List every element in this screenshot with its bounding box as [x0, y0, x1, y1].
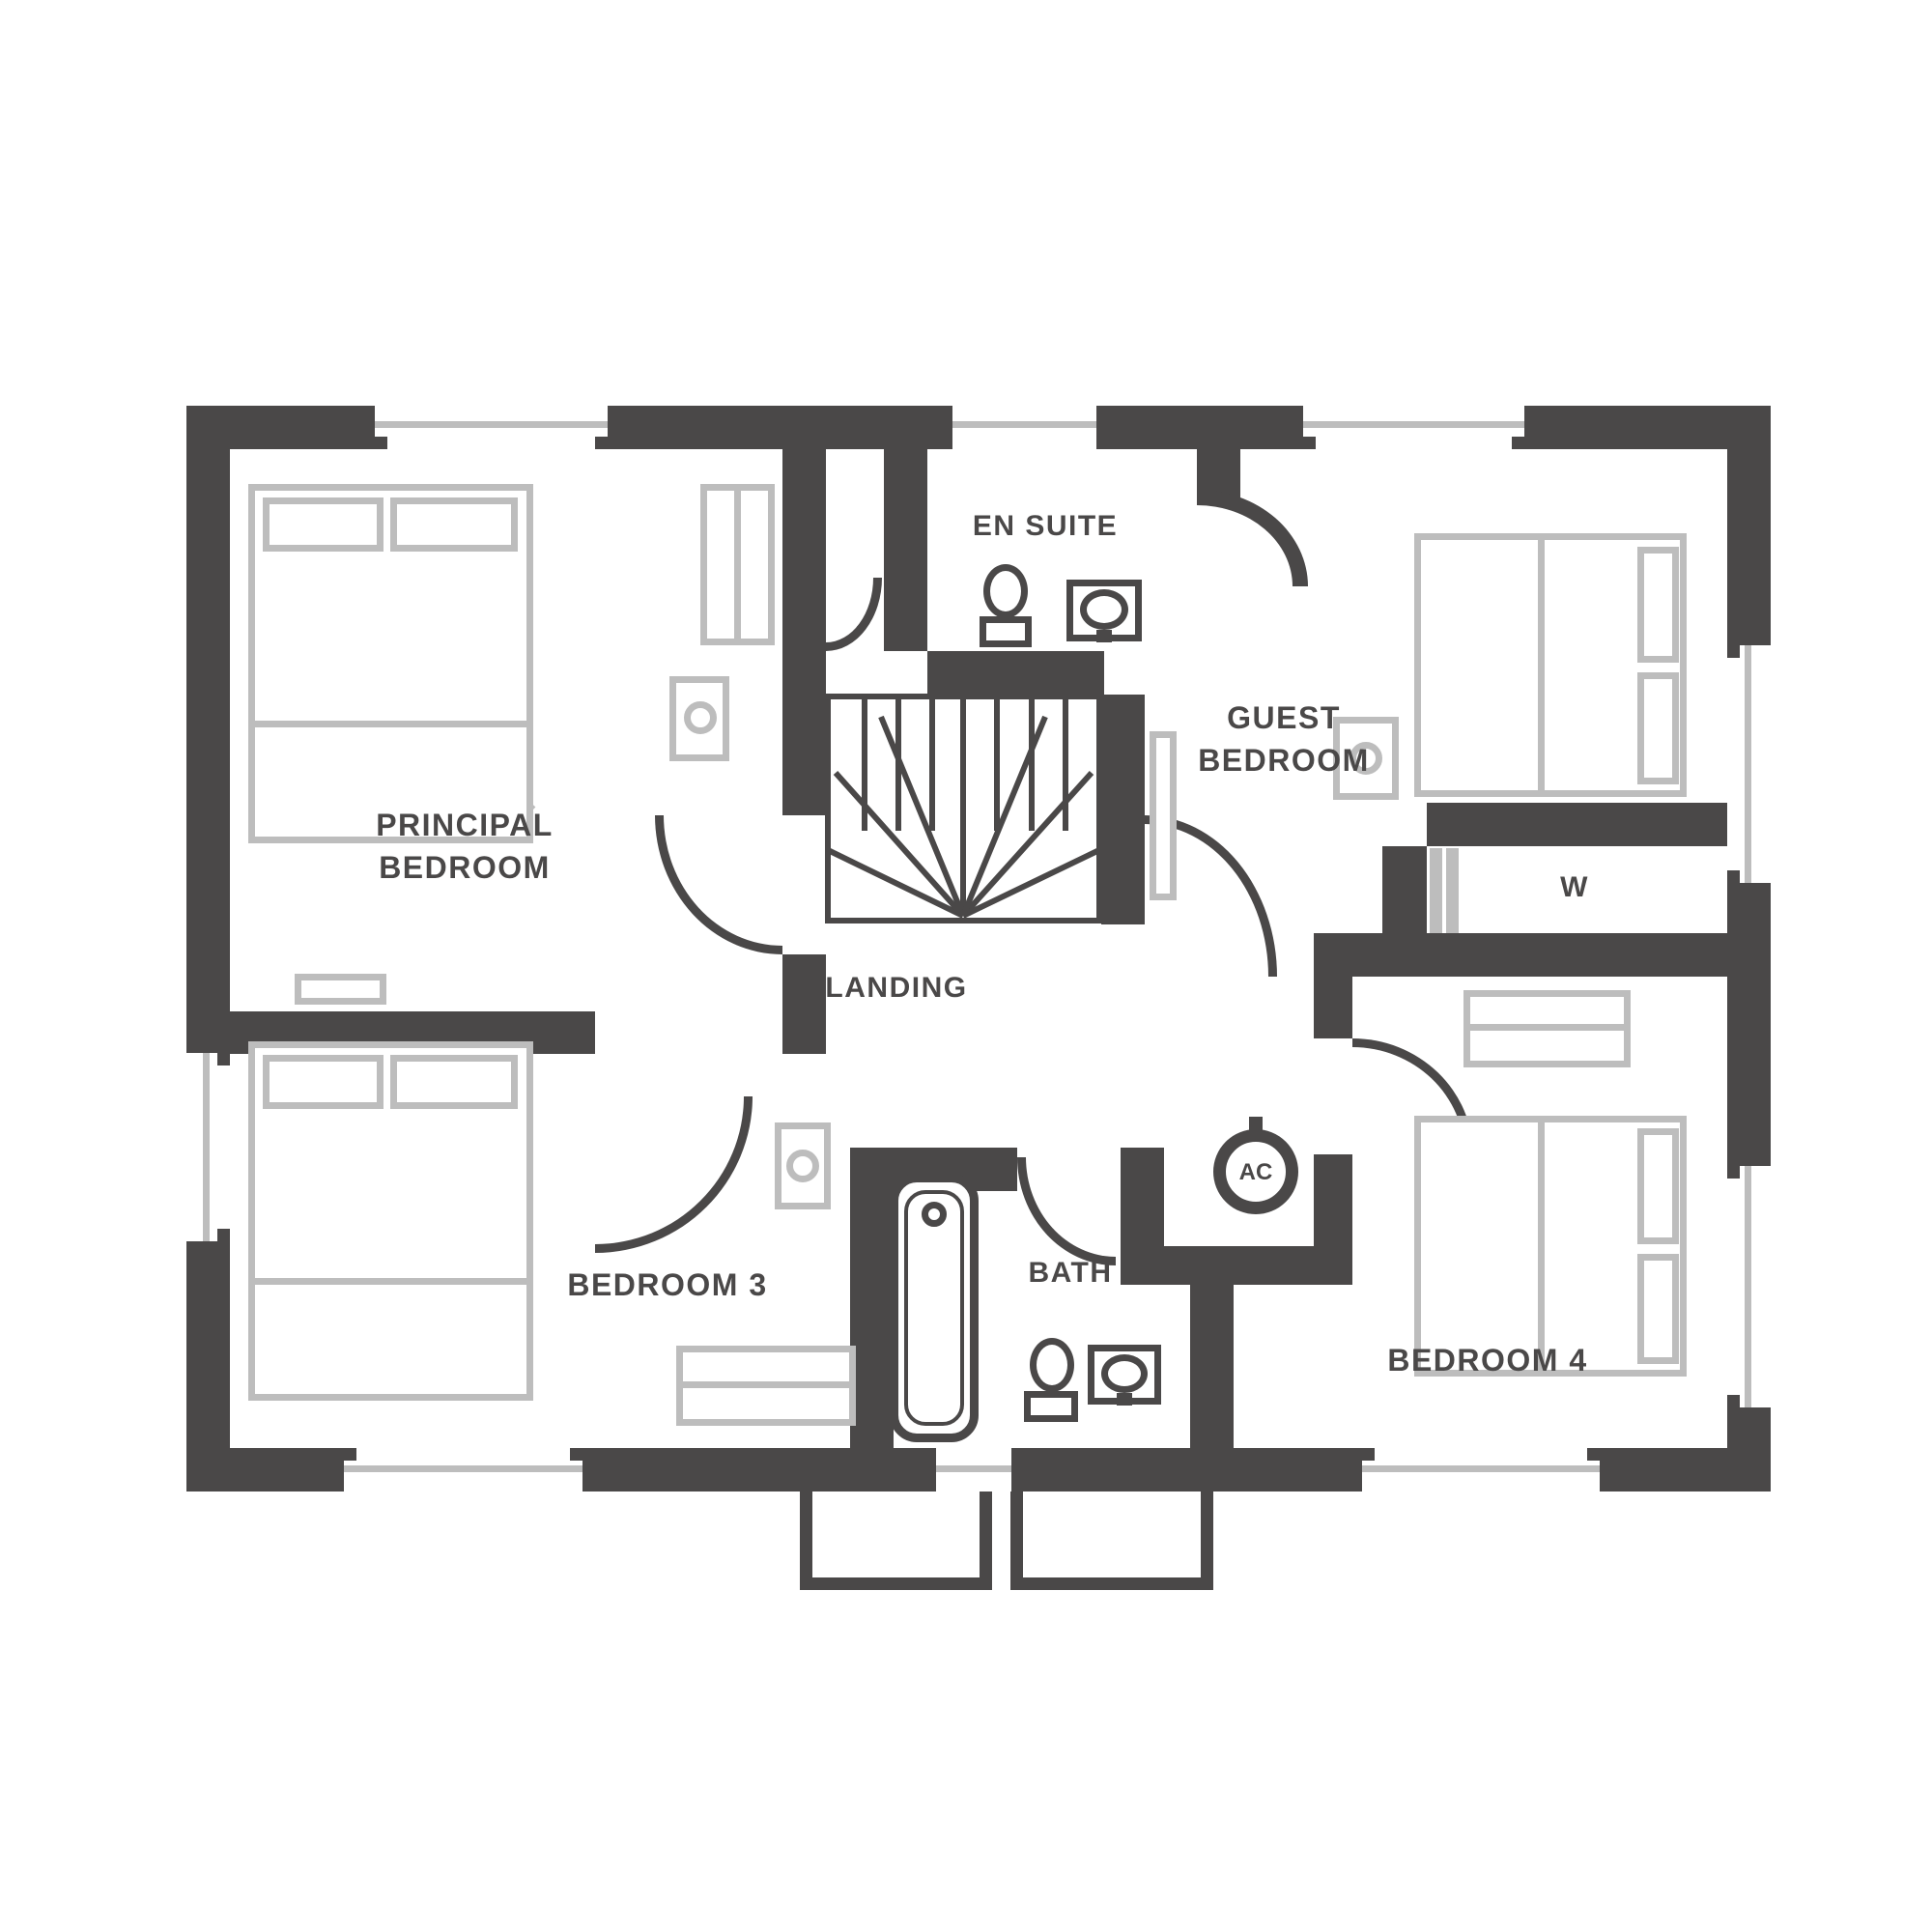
wall-segment: [1727, 1407, 1771, 1448]
curved-wall-ensuite: [1197, 490, 1308, 586]
window: [952, 421, 1096, 428]
pillow: [1637, 1128, 1679, 1244]
room-label-line: PRINCIPAL: [376, 804, 554, 846]
blanket-line: [248, 721, 533, 727]
bath-taps: [922, 1202, 947, 1227]
room-label-en-suite: EN SUITE: [973, 505, 1118, 548]
wall-segment: [927, 651, 1104, 695]
window-jamb: [595, 437, 608, 449]
door-swing-bath: [1017, 1157, 1116, 1265]
room-label-bath: BATH: [1028, 1252, 1112, 1294]
basin-tap: [1117, 1393, 1132, 1406]
window: [1303, 421, 1524, 428]
wall-segment: [1096, 406, 1303, 449]
room-label-wardrobe: W: [1560, 867, 1589, 909]
wall-segment: [1314, 977, 1352, 1038]
pillow: [263, 1055, 384, 1109]
wall-segment: [1190, 1285, 1234, 1448]
window: [203, 1053, 210, 1241]
window: [1745, 1166, 1751, 1407]
wall-segment: [582, 1448, 936, 1492]
basin-bowl: [1101, 1354, 1148, 1393]
wall-segment: [1524, 406, 1771, 449]
blanket-line: [1538, 1116, 1545, 1377]
room-label-principal-bedroom: PRINCIPAL BEDROOM: [376, 804, 554, 889]
wall-segment: [884, 449, 927, 651]
room-label-airing-cupboard: AC: [1239, 1151, 1273, 1194]
window: [375, 421, 608, 428]
cupboard-door: [1446, 848, 1459, 933]
wall-segment: [608, 406, 952, 449]
wall-segment: [1382, 846, 1427, 933]
window-jamb: [1727, 870, 1740, 883]
window: [344, 1465, 582, 1472]
toilet-bowl: [983, 564, 1028, 618]
window-jamb: [570, 1448, 582, 1461]
floor-plan: PRINCIPAL BEDROOM GUEST BEDROOM EN SUITE…: [0, 0, 1932, 1932]
blanket-line: [1538, 533, 1545, 797]
room-label-line: BEDROOM: [1198, 739, 1370, 781]
window-jamb: [1727, 645, 1740, 658]
door-swing-ensuite-lobby: [826, 578, 882, 651]
toilet-bowl: [1030, 1338, 1074, 1392]
window: [936, 1465, 1011, 1472]
room-label-line: GUEST: [1198, 696, 1370, 739]
window-jamb: [217, 1053, 230, 1065]
window: [1362, 1465, 1600, 1472]
door-swing-principal: [655, 815, 782, 954]
wardrobe-door-line: [1470, 1024, 1624, 1031]
wall-segment: [782, 954, 826, 1054]
pillow: [1637, 547, 1679, 663]
airing-cupboard-tick: [1249, 1117, 1263, 1134]
basin-bowl: [1080, 589, 1128, 630]
window-jamb: [217, 1229, 230, 1241]
wall-segment: [186, 1448, 344, 1492]
blanket-line: [248, 1278, 533, 1285]
wall-segment: [1154, 1246, 1352, 1285]
porch: [1010, 1492, 1213, 1590]
window-jamb: [1303, 437, 1316, 449]
window: [1745, 645, 1751, 883]
basin-tap: [1096, 630, 1112, 642]
wall-segment: [1427, 803, 1727, 846]
pillow: [390, 1055, 518, 1109]
wall-segment: [1314, 933, 1727, 977]
door-swing-bedroom3: [595, 1096, 753, 1253]
pillow: [390, 497, 518, 552]
pillow: [1637, 1254, 1679, 1364]
wardrobe-door-line: [683, 1381, 849, 1388]
toilet-cistern: [980, 616, 1032, 647]
wardrobe-door-line: [734, 491, 741, 639]
wall-segment: [1727, 883, 1771, 1166]
window-jamb: [1587, 1448, 1600, 1461]
room-label-landing: LANDING: [825, 967, 967, 1009]
window-jamb: [1727, 1166, 1740, 1179]
wall-segment: [186, 1241, 230, 1448]
window-jamb: [1362, 1448, 1375, 1461]
room-label-bedroom-4: BEDROOM 4: [1387, 1339, 1587, 1381]
door-leaf: [1150, 731, 1177, 900]
window-jamb: [1727, 1395, 1740, 1407]
wall-segment: [1101, 695, 1145, 924]
wall-segment: [1011, 1448, 1362, 1492]
window-jamb: [1512, 437, 1524, 449]
lamp: [786, 1150, 819, 1182]
porch: [800, 1492, 992, 1590]
radiator: [295, 974, 386, 1005]
toilet-cistern: [1024, 1391, 1078, 1422]
lamp: [684, 701, 717, 734]
room-label-bedroom-3: BEDROOM 3: [567, 1264, 767, 1306]
room-label-line: BEDROOM: [376, 846, 554, 889]
wall-segment: [782, 449, 826, 815]
pillow: [263, 497, 384, 552]
wall-segment: [850, 1148, 894, 1448]
wall-segment: [1600, 1448, 1771, 1492]
window-jamb: [344, 1448, 356, 1461]
cupboard-door: [1430, 848, 1442, 933]
wall-segment: [1727, 449, 1771, 645]
window-jamb: [375, 437, 387, 449]
pillow: [1637, 672, 1679, 784]
wall-segment: [186, 449, 230, 1053]
wall-segment: [186, 406, 375, 449]
room-label-guest-bedroom: GUEST BEDROOM: [1198, 696, 1370, 781]
